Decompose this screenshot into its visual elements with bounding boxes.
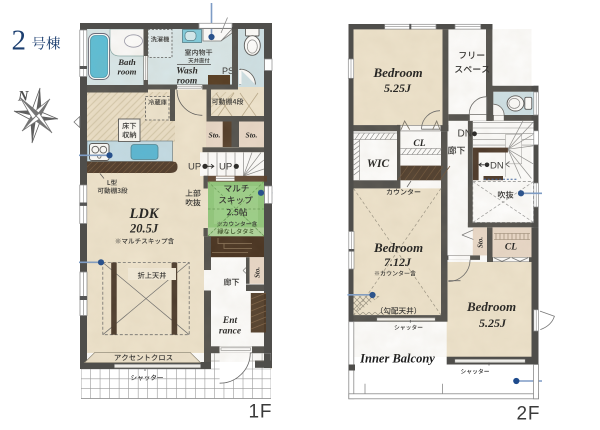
svg-text:1F: 1F	[249, 402, 273, 423]
svg-text:2: 2	[12, 25, 27, 57]
svg-text:2F: 2F	[517, 404, 541, 425]
